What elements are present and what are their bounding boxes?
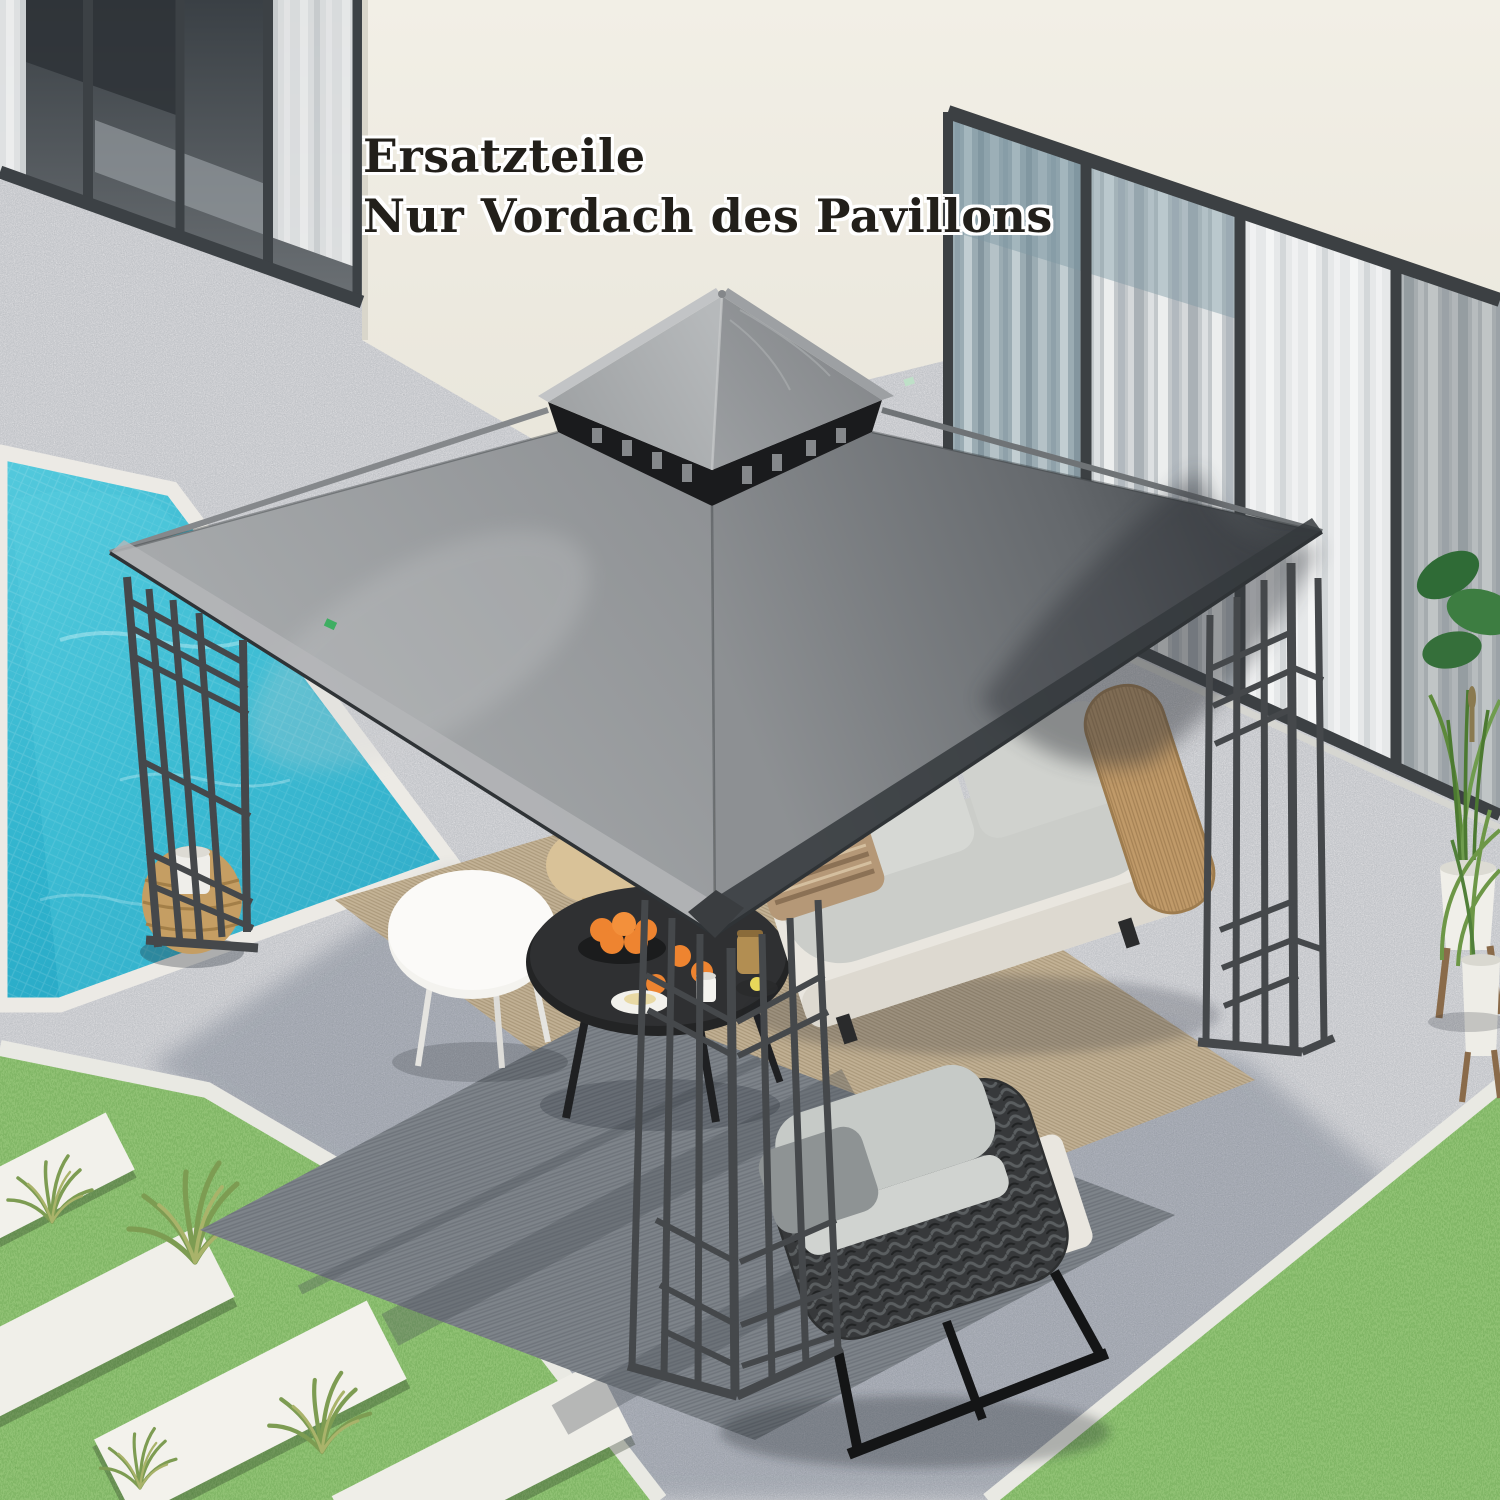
top-tier-peak bbox=[718, 290, 726, 298]
caption-overlay: Ersatzteile Nur Vordach des Pavillons bbox=[363, 126, 1123, 246]
sheer-curtain-left bbox=[0, 0, 26, 180]
product-photo-gazebo-canopy: Ersatzteile Nur Vordach des Pavillons bbox=[0, 0, 1500, 1500]
caption-line-2: Nur Vordach des Pavillons bbox=[363, 186, 1123, 246]
coffee-table bbox=[526, 886, 790, 1131]
caption-line-1: Ersatzteile bbox=[363, 126, 1123, 186]
sheer-curtain-pane bbox=[268, 0, 358, 268]
